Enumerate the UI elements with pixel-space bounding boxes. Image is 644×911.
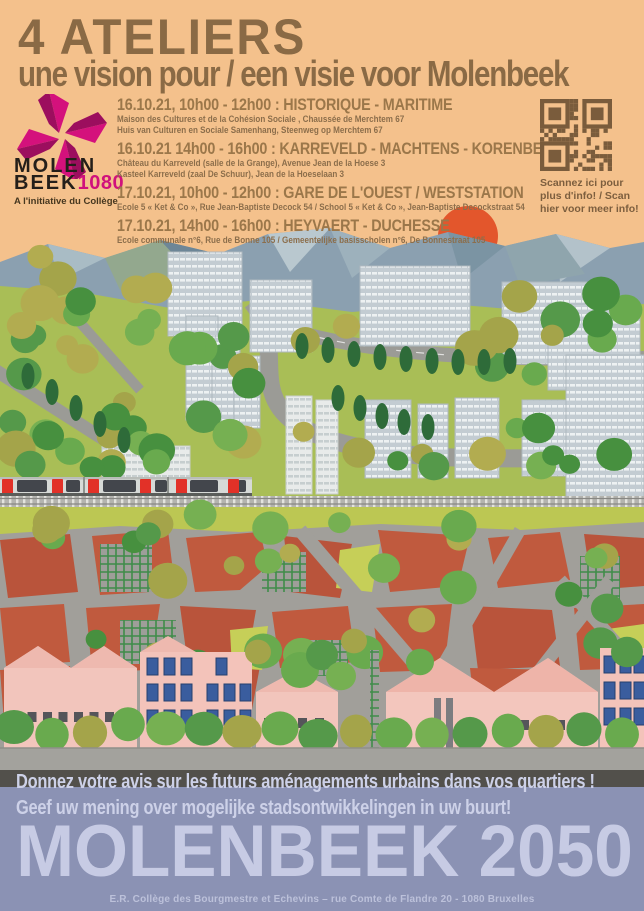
event-item: 17.10.21, 14h00 - 16h00 : HEYVAERT - DUC… [117, 217, 587, 246]
banner-line-fr: Donnez votre avis sur les futurs aménage… [16, 769, 644, 795]
logo-wordmark: MOLEN BEEK1080 [14, 158, 124, 192]
city-illustration [0, 200, 644, 775]
event-item: 16.10.21, 10h00 - 12h00 : HISTORIQUE - M… [117, 96, 587, 136]
qr-caption: Scannez ici pour plus d'info! / Scan hie… [540, 177, 644, 216]
train-icon [0, 477, 252, 496]
event-venue-nl: Huis van Culturen en Sociale Samenhang, … [117, 125, 587, 136]
event-title: 16.10.21, 10h00 - 12h00 : HISTORIQUE - M… [117, 96, 587, 114]
qr-code-icon [540, 99, 612, 176]
poster-subtitle: une vision pour / een visie voor Molenbe… [18, 56, 644, 92]
railway-track [0, 496, 644, 507]
molenbeek-logo: MOLEN BEEK1080 A l'initiative du Collège [10, 94, 120, 184]
event-venue-fr: Maison des Cultures et de la Cohésion So… [117, 114, 587, 125]
event-title: 17.10.21, 10h00 - 12h00 : GARE DE L'OUES… [117, 184, 587, 202]
event-venue-fr: Château du Karreveld (salle de la Grange… [117, 158, 587, 169]
event-title: 17.10.21, 14h00 - 16h00 : HEYVAERT - DUC… [117, 217, 587, 235]
event-venue: Ecole communale n°6, Rue de Bonne 105 / … [117, 235, 587, 246]
event-item: 17.10.21, 10h00 - 12h00 : GARE DE L'OUES… [117, 184, 587, 213]
bottom-banner: Donnez votre avis sur les futurs aménage… [0, 787, 644, 911]
event-title: 16.10.21 14h00 - 16h00 : KARREVELD - MAC… [117, 140, 587, 158]
event-item: 16.10.21 14h00 - 16h00 : KARREVELD - MAC… [117, 140, 587, 180]
banner-big-title: MOLENBEEK 2050 [0, 815, 644, 888]
event-venue: Ecole 5 « Ket & Co », Rue Jean-Baptiste … [117, 202, 587, 213]
poster: 4 ATELIERS une vision pour / een visie v… [0, 0, 644, 911]
logo-tagline: A l'initiative du Collège [14, 196, 118, 207]
banner-footer: E.R. Collège des Bourgmestre et Echevins… [0, 894, 644, 905]
event-venue-nl: Kasteel Karreveld (zaal De Schuur), Jean… [117, 169, 587, 180]
events-list: 16.10.21, 10h00 - 12h00 : HISTORIQUE - M… [117, 96, 587, 250]
